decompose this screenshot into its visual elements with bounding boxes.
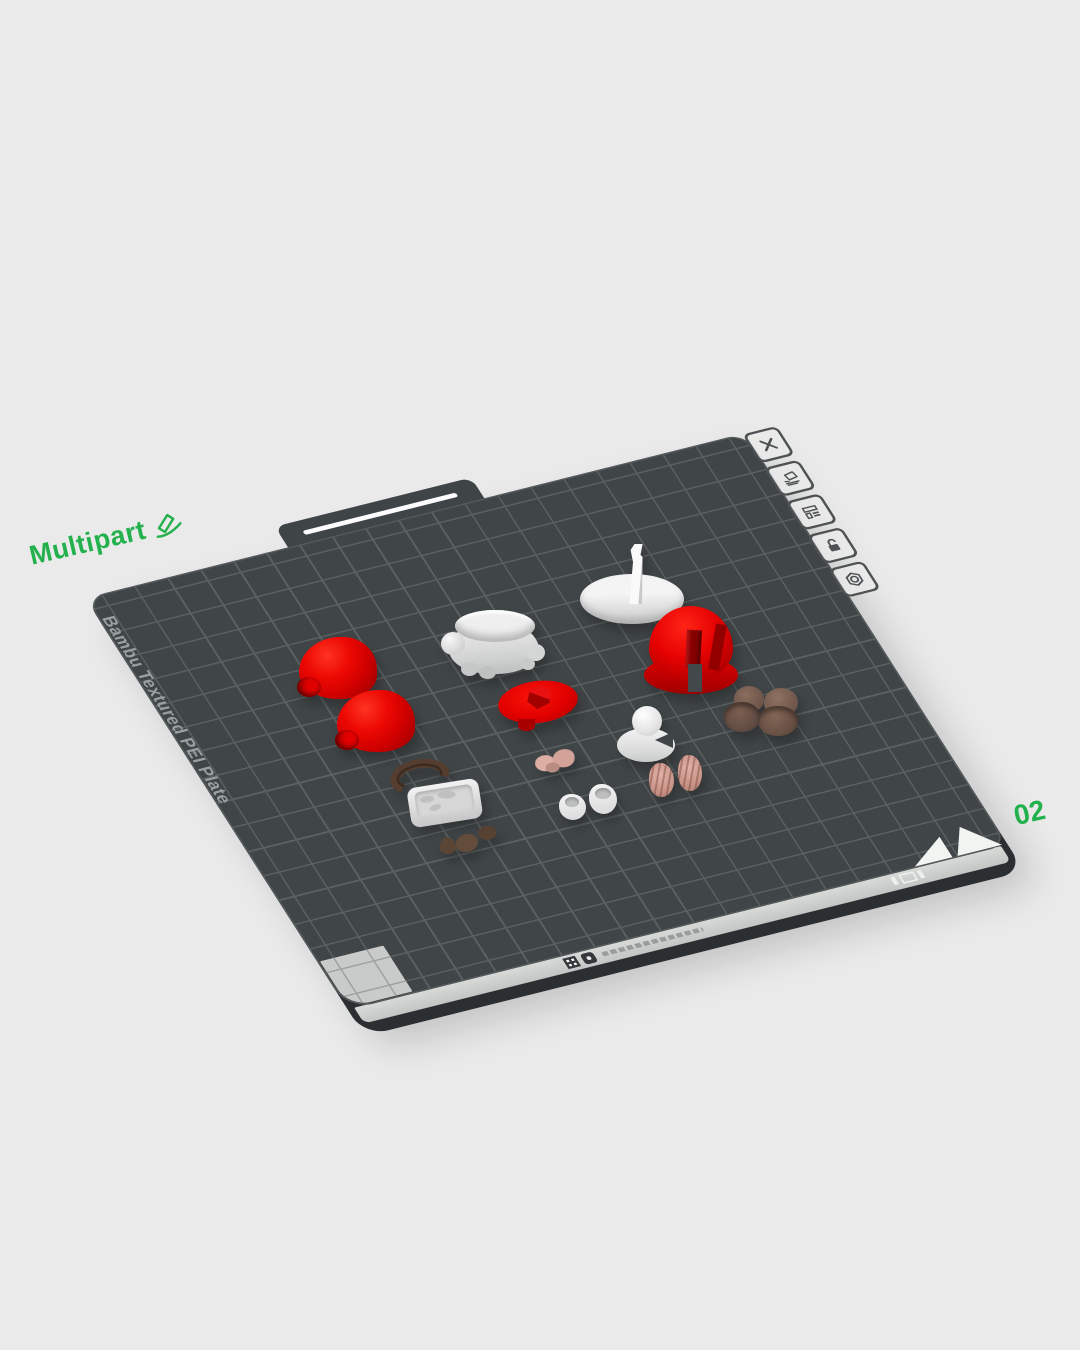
shoe-right — [758, 706, 798, 736]
models-layer — [0, 0, 1080, 1350]
model-red-glove-left[interactable] — [299, 637, 377, 699]
model-brown-mustache-pieces[interactable] — [440, 826, 498, 856]
bambu-studio-canvas: { "canvas": {"width": 1080, "height": 13… — [0, 0, 1080, 1350]
head-sphere — [632, 706, 662, 736]
mustache-piece-3 — [476, 824, 497, 842]
fist-left — [649, 763, 674, 797]
cap-brim-stem — [518, 719, 535, 731]
model-pink-fists[interactable] — [649, 755, 703, 797]
torso-opening — [455, 610, 535, 642]
ear-crease — [545, 762, 560, 773]
shoe-left — [724, 702, 760, 732]
torso-arm-stub-2 — [521, 658, 535, 670]
mustache-piece-2 — [456, 834, 478, 852]
model-white-torso[interactable] — [441, 608, 547, 682]
torso-foot-right — [479, 666, 496, 679]
boot-left-opening — [565, 797, 579, 807]
boot-right-opening — [595, 788, 611, 799]
model-white-head[interactable] — [617, 706, 677, 762]
model-red-cap-dome[interactable] — [644, 606, 738, 696]
boot-left — [559, 794, 586, 820]
model-red-cap-brim[interactable] — [498, 681, 580, 733]
model-brown-shoes[interactable] — [724, 686, 802, 742]
boot-right — [589, 784, 617, 814]
cap-dome-slot-1 — [685, 630, 702, 669]
torso-joint-sphere — [441, 632, 465, 655]
cap-dome-gap — [688, 664, 702, 692]
model-pink-ears[interactable] — [534, 746, 581, 778]
model-red-glove-right[interactable] — [337, 690, 415, 752]
model-white-boots[interactable] — [559, 784, 621, 822]
torso-foot-left — [461, 662, 478, 676]
fist-right — [678, 755, 702, 791]
